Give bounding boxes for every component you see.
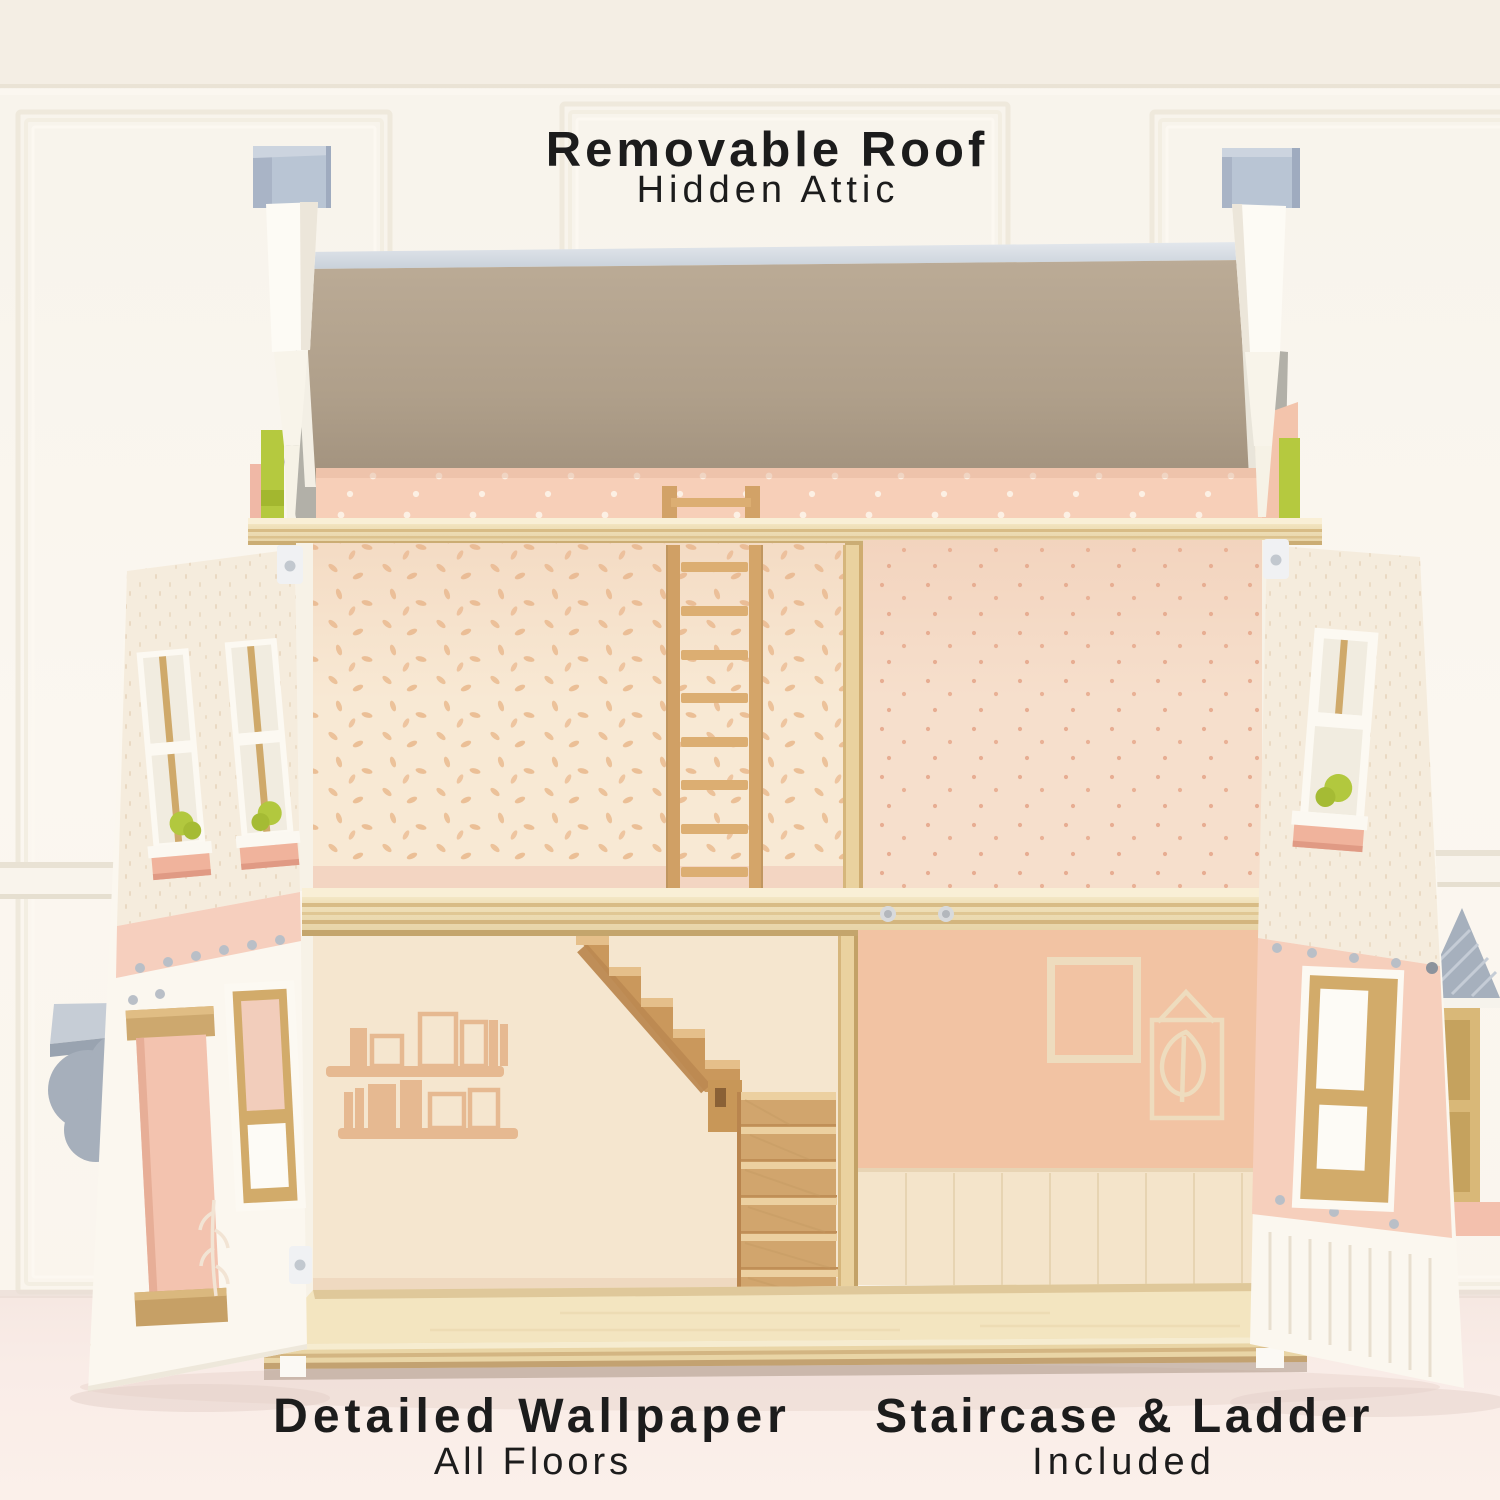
svg-text:Included: Included xyxy=(1032,1441,1216,1483)
svg-text:Hidden Attic: Hidden Attic xyxy=(637,169,900,211)
svg-text:Detailed Wallpaper: Detailed Wallpaper xyxy=(273,1390,791,1443)
svg-text:All Floors: All Floors xyxy=(434,1441,632,1483)
svg-text:Staircase & Ladder: Staircase & Ladder xyxy=(875,1390,1373,1443)
